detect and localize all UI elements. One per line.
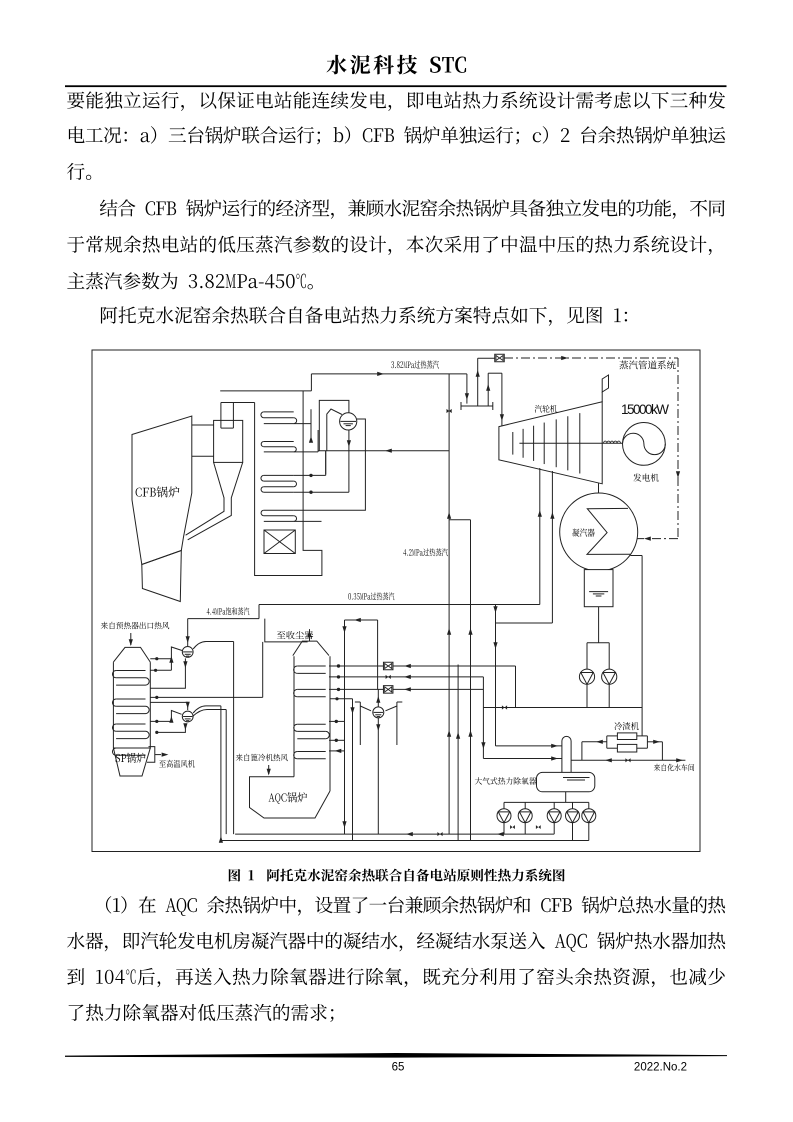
svg-text:65: 65 xyxy=(392,1062,405,1074)
svg-text:2022.No.2: 2022.No.2 xyxy=(634,1062,687,1074)
svg-text:15000kW: 15000kW xyxy=(621,402,669,417)
